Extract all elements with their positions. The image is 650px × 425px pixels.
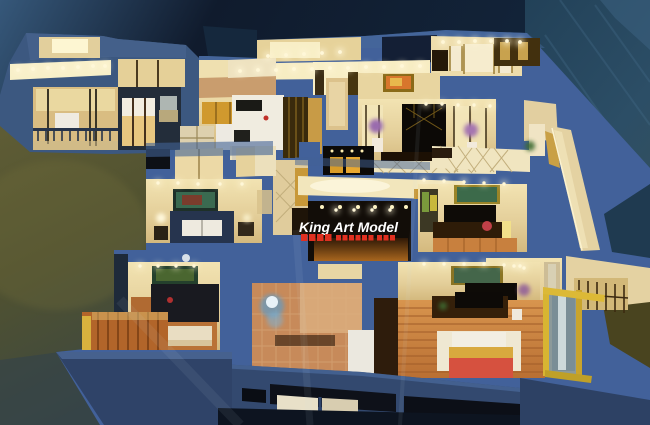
svg-text:King Art Model: King Art Model [299, 219, 399, 235]
